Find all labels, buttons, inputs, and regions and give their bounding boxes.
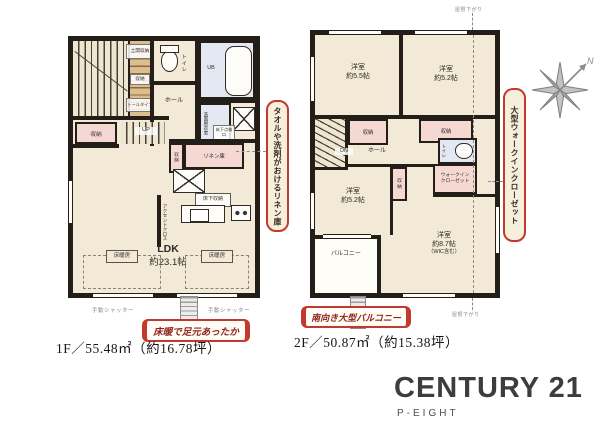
roof-slope-tick [472,298,473,310]
washroom-label: 洗面脱衣室 [203,106,209,140]
toilet-bowl-icon [161,51,178,72]
roof-slope-tick [472,13,473,30]
dn-label: DN [335,148,353,155]
toilet-label-2f: トイレ [441,141,447,161]
stairs-down [315,119,345,167]
walk-in-closet: ウォークイン クローゼット [433,164,477,194]
bathtub-icon [225,46,252,96]
wall [433,194,495,197]
up-label: UP [135,127,157,135]
bedroom55-size: 約5.5帖 [323,72,393,81]
balcony-label: バルコニー [321,251,371,259]
floorplan-canvas: 土間収納 収納 トールタイプ トイレ ホール UB 洗面脱衣室 床下点検口 収納… [0,0,600,441]
shelf-storage-label: 収納 [130,74,150,85]
linen-storage-text: リネン庫 [203,152,225,160]
floor1-plan: 土間収納 収納 トールタイプ トイレ ホール UB 洗面脱衣室 床下点検口 収納… [68,36,260,298]
brand-tagline-text: P-EIGHT [397,408,459,419]
bedroom52b-name: 洋室 [327,187,379,196]
kitchen-sink-icon [190,209,209,222]
shutter-text: 手動シャッター [92,308,134,314]
accent-cross-text: アクセントクロス [163,204,168,241]
bedroom52a-label: 洋室 約5.2帖 [410,65,482,83]
closet-left-text: 収納 [90,129,102,138]
wall [399,35,403,115]
wic-callout-line [488,181,503,182]
underfloor-hatch-text: 床下点検口 [214,128,234,137]
bedroom55-name: 洋室 [323,63,393,72]
wic-callout-badge: 大型ウォークインクローゼット [503,88,526,242]
bedroom52a-size: 約5.2帖 [410,74,482,83]
ub-label: UB [201,65,221,72]
underfloor-storage-text: 床下収納 [203,197,223,203]
brand-logo: CENTURY 21 [394,372,583,405]
floor-heating-text: 床暖房 [209,254,225,260]
toilet-text-1f: トイレ [181,54,187,73]
hall-label-1f: ホール [155,97,193,105]
window [310,57,315,101]
window [310,193,315,229]
linen-storage: リネン庫 [184,143,244,169]
wall [390,164,393,235]
toilet-text-2f: トイレ [442,144,447,158]
closet-2f: 収納 [348,119,388,145]
tall-type-text: トールタイプ [127,103,152,107]
window [93,293,153,298]
floor2-plan: 洋室 約5.5帖 洋室 約5.2帖 DN 収納 収納 ホール トイレ ウォークイ… [310,30,500,298]
stove-icon [231,205,251,221]
shelf-storage-text: 収納 [135,77,144,82]
accent-wall [157,195,161,247]
bedroom52b-size: 約5.2帖 [327,196,379,205]
window [415,30,467,35]
compass-n-label: N [587,56,594,66]
closet-text: 収納 [395,178,402,190]
closet-text: 収納 [363,128,374,136]
balcony-text: バルコニー [331,251,361,257]
underfloor-hatch-label: 床下点検口 [213,125,235,140]
roof-slope-text: 屋根下がり [452,312,480,318]
floor-heating-label: 床暖房 [106,250,138,263]
wall [315,167,348,170]
wall [73,144,119,148]
ub-text: UB [207,65,215,71]
wall [73,116,169,120]
dn-text: DN [340,148,348,154]
kitchen-counter [181,205,225,223]
hall-label-2f: ホール [361,148,393,156]
roof-slope-text: 屋根下がり [455,7,483,13]
wall [377,235,381,293]
bedroom55-label: 洋室 約5.5帖 [323,63,393,81]
doma-storage-text: 土間収納 [131,49,149,54]
toilet-tank-icon [160,45,179,53]
understair-crossbox-icon [173,169,205,193]
window [403,293,455,298]
wic-line2: クローゼット [441,179,470,185]
bedroom52b-label: 洋室 約5.2帖 [327,187,379,205]
window [68,181,73,223]
window [329,30,381,35]
linen-callout-line [236,151,266,152]
linen-callout-text: タオルや洗剤がおけるリネン庫 [272,107,283,226]
entrance-stairs-hatch [73,41,128,116]
hall-text-2f: ホール [368,148,386,154]
wic-callout-text: 大型ウォークインクローゼット [509,106,520,225]
floor-heating-badge-text: 床暖で足元あったか [153,324,239,338]
balcony-badge-text: 南向き大型バルコニー [311,311,401,324]
hall-text-1f: ホール [165,97,184,104]
shutter-text: 手動シャッター [208,308,250,314]
bedroom87-size: 約8.7帖 [407,240,481,249]
small-closet-text: 収納 [174,152,180,163]
roof-slope-label: 屋根下がり [452,311,480,318]
floor1-area-text: 1F／55.48㎡（約16.78坪） [56,341,221,356]
brand-tagline: P-EIGHT [397,408,459,419]
floor2-area-text: 2F／50.87㎡（約15.38坪） [294,335,459,350]
bedroom87-note: （WIC含む） [407,249,481,256]
washroom-text: 洗面脱衣室 [204,112,209,135]
compass-rose-icon: N [526,56,594,124]
roof-slope-line [473,35,474,293]
washing-machine-pan-icon [233,107,255,131]
up-text: UP [142,127,150,133]
toilet-label-1f: トイレ [180,45,187,81]
wall [154,81,195,85]
closet-left-1f: 収納 [75,122,117,144]
window [495,207,500,253]
floor-heating-label: 床暖房 [201,250,233,263]
brand-name-text: CENTURY 21 [394,372,583,404]
linen-callout-badge: タオルや洗剤がおけるリネン庫 [266,100,289,232]
balcony-badge: 南向き大型バルコニー [301,306,411,328]
bedroom87-label: 洋室 約8.7帖 （WIC含む） [407,231,481,256]
balcony [315,239,377,293]
floor-heating-text: 床暖房 [114,254,130,260]
floor1-area-label: 1F／55.48㎡（約16.78坪） [56,337,221,357]
roof-slope-label: 屋根下がり [455,6,483,13]
floor2-area-label: 2F／50.87㎡（約15.38坪） [294,331,459,351]
bedroom52a-name: 洋室 [410,65,482,74]
toilet-bowl-icon [455,143,473,159]
bedroom87-name: 洋室 [407,231,481,240]
closet-text: 収納 [441,127,452,135]
shutter-label: 手動シャッター [208,306,250,314]
shutter-label: 手動シャッター [92,306,134,314]
